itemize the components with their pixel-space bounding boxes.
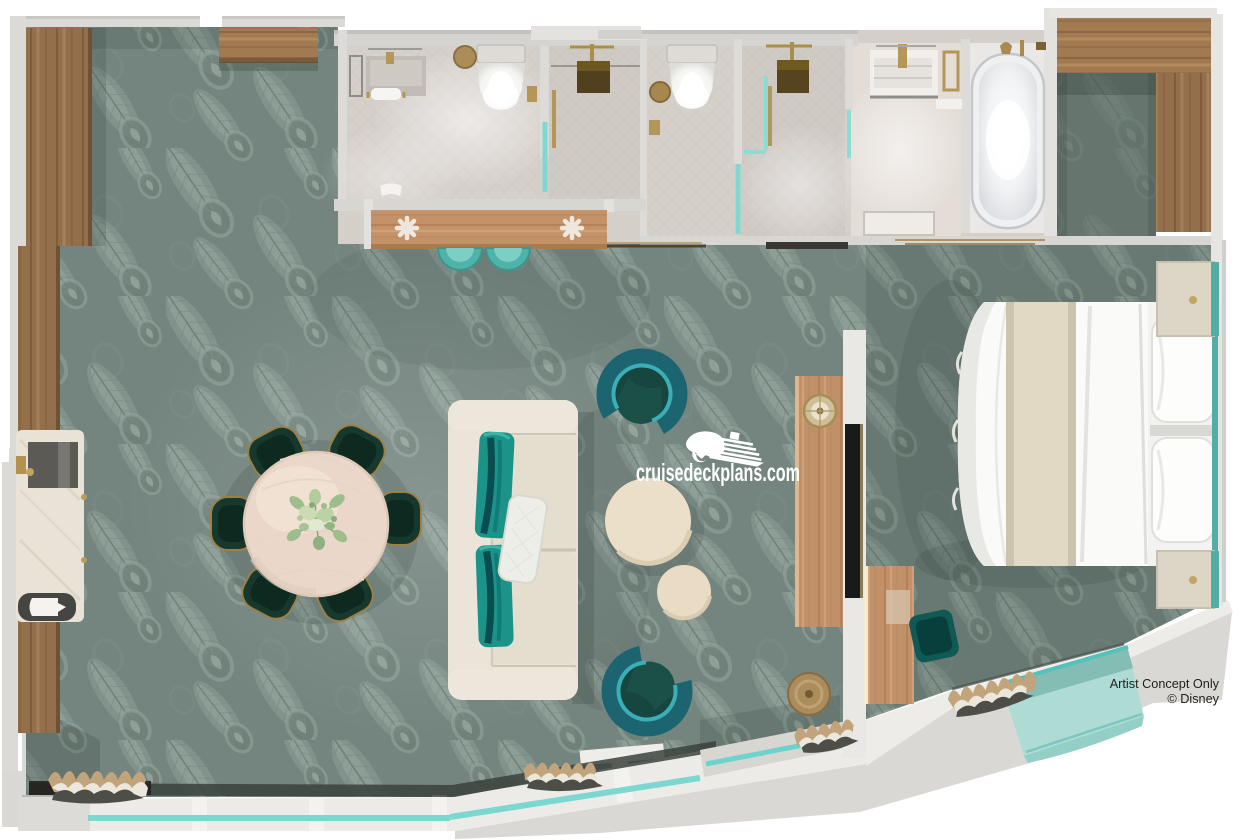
svg-text:Artist Concept Only: Artist Concept Only: [1110, 677, 1220, 691]
svg-text:© Disney: © Disney: [1167, 692, 1219, 706]
svg-text:cruisedeckplans.com: cruisedeckplans.com: [636, 459, 800, 487]
